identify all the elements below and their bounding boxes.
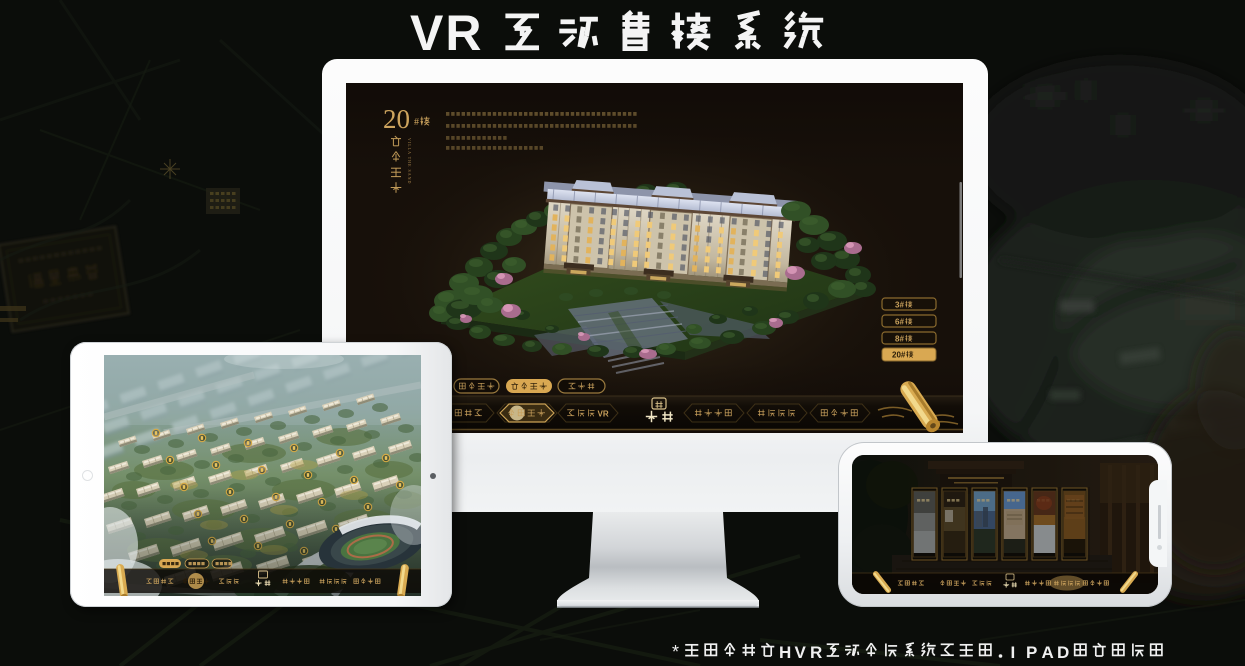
svg-text:20#: 20# bbox=[892, 351, 906, 360]
svg-text:20: 20 bbox=[383, 104, 410, 134]
svg-text:8#: 8# bbox=[895, 335, 904, 344]
svg-text:A: A bbox=[1042, 643, 1054, 662]
svg-text:D: D bbox=[1057, 643, 1069, 662]
svg-text:*: * bbox=[672, 642, 679, 662]
svg-text:V: V bbox=[795, 643, 807, 662]
svg-text:6#: 6# bbox=[895, 318, 904, 327]
svg-text:#: # bbox=[414, 117, 419, 128]
svg-text:R: R bbox=[810, 643, 822, 662]
svg-text:H: H bbox=[779, 643, 791, 662]
svg-text:VR: VR bbox=[410, 5, 483, 61]
svg-text:3#: 3# bbox=[895, 301, 904, 310]
svg-text:VILLA THE SAND: VILLA THE SAND bbox=[407, 138, 412, 184]
svg-text:I: I bbox=[1011, 643, 1016, 662]
svg-text:P: P bbox=[1026, 643, 1037, 662]
svg-text:VR: VR bbox=[598, 410, 609, 419]
